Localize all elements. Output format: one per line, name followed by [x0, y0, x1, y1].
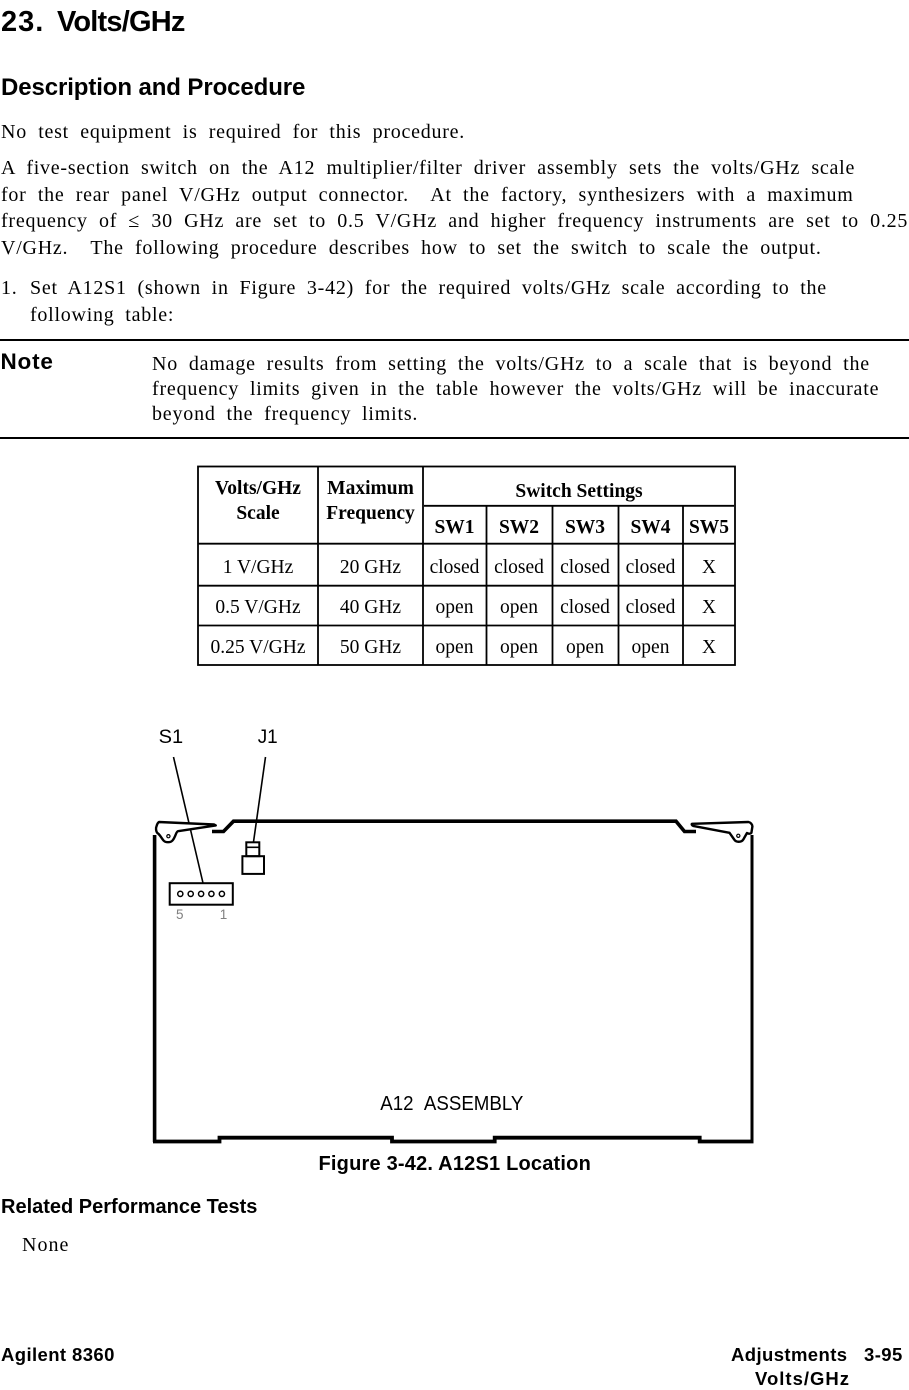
- svg-text:J1: J1: [258, 727, 278, 748]
- svg-text:5: 5: [176, 907, 184, 922]
- svg-text:A12 ASSEMBLY: A12 ASSEMBLY: [380, 1093, 523, 1115]
- svg-text:1: 1: [220, 907, 228, 922]
- svg-text:S1: S1: [159, 727, 184, 748]
